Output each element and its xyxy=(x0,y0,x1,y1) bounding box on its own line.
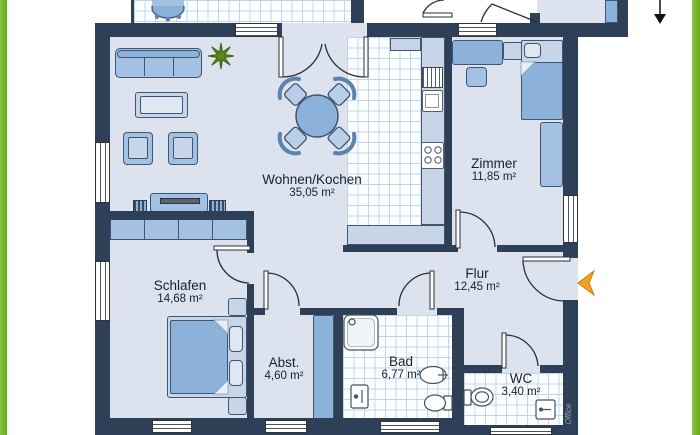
entrance-arrow-icon xyxy=(578,271,594,295)
stairwell-doors xyxy=(423,0,537,22)
plan-overlay xyxy=(0,0,700,435)
duvet-fold xyxy=(214,320,228,334)
room-label-wohnen-kochen: Wohnen/Kochen35,05 m² xyxy=(262,172,362,200)
room-label-bad: Bad6,77 m² xyxy=(382,354,421,382)
room-label-wc: WC3,40 m² xyxy=(502,371,541,399)
room-label-schlafen: Schlafen14,68 m² xyxy=(154,278,207,306)
floor-plan: Wohnen/Kochen35,05 m² Zimmer11,85 m² Sch… xyxy=(0,0,700,435)
wc-door xyxy=(502,333,538,368)
dining-set xyxy=(280,79,355,154)
watermark: Office xyxy=(564,392,576,435)
bad-door xyxy=(399,271,434,309)
duvet-fold xyxy=(521,62,535,76)
room-label-zimmer: Zimmer11,85 m² xyxy=(471,156,517,184)
down-arrow-icon xyxy=(654,0,666,24)
zimmer-door xyxy=(456,210,495,248)
terrace-double-door xyxy=(279,37,368,77)
stove-burners xyxy=(425,147,441,163)
abst-door xyxy=(264,271,299,309)
room-label-abst: Abst.4,60 m² xyxy=(265,355,304,383)
duvet-fold xyxy=(214,380,228,394)
washing-machine xyxy=(351,385,368,408)
grill-icon xyxy=(152,0,184,22)
room-label-flur: Flur12,45 m² xyxy=(454,266,499,294)
wc-washbasin xyxy=(536,400,555,419)
shower xyxy=(344,315,378,350)
entrance-door xyxy=(523,257,570,301)
schlafen-door xyxy=(214,246,250,283)
plant-icon xyxy=(208,43,234,69)
wc-toilet xyxy=(464,388,493,406)
dining-table xyxy=(296,95,338,137)
bad-washbasin xyxy=(420,367,448,384)
bad-toilet xyxy=(425,395,453,411)
